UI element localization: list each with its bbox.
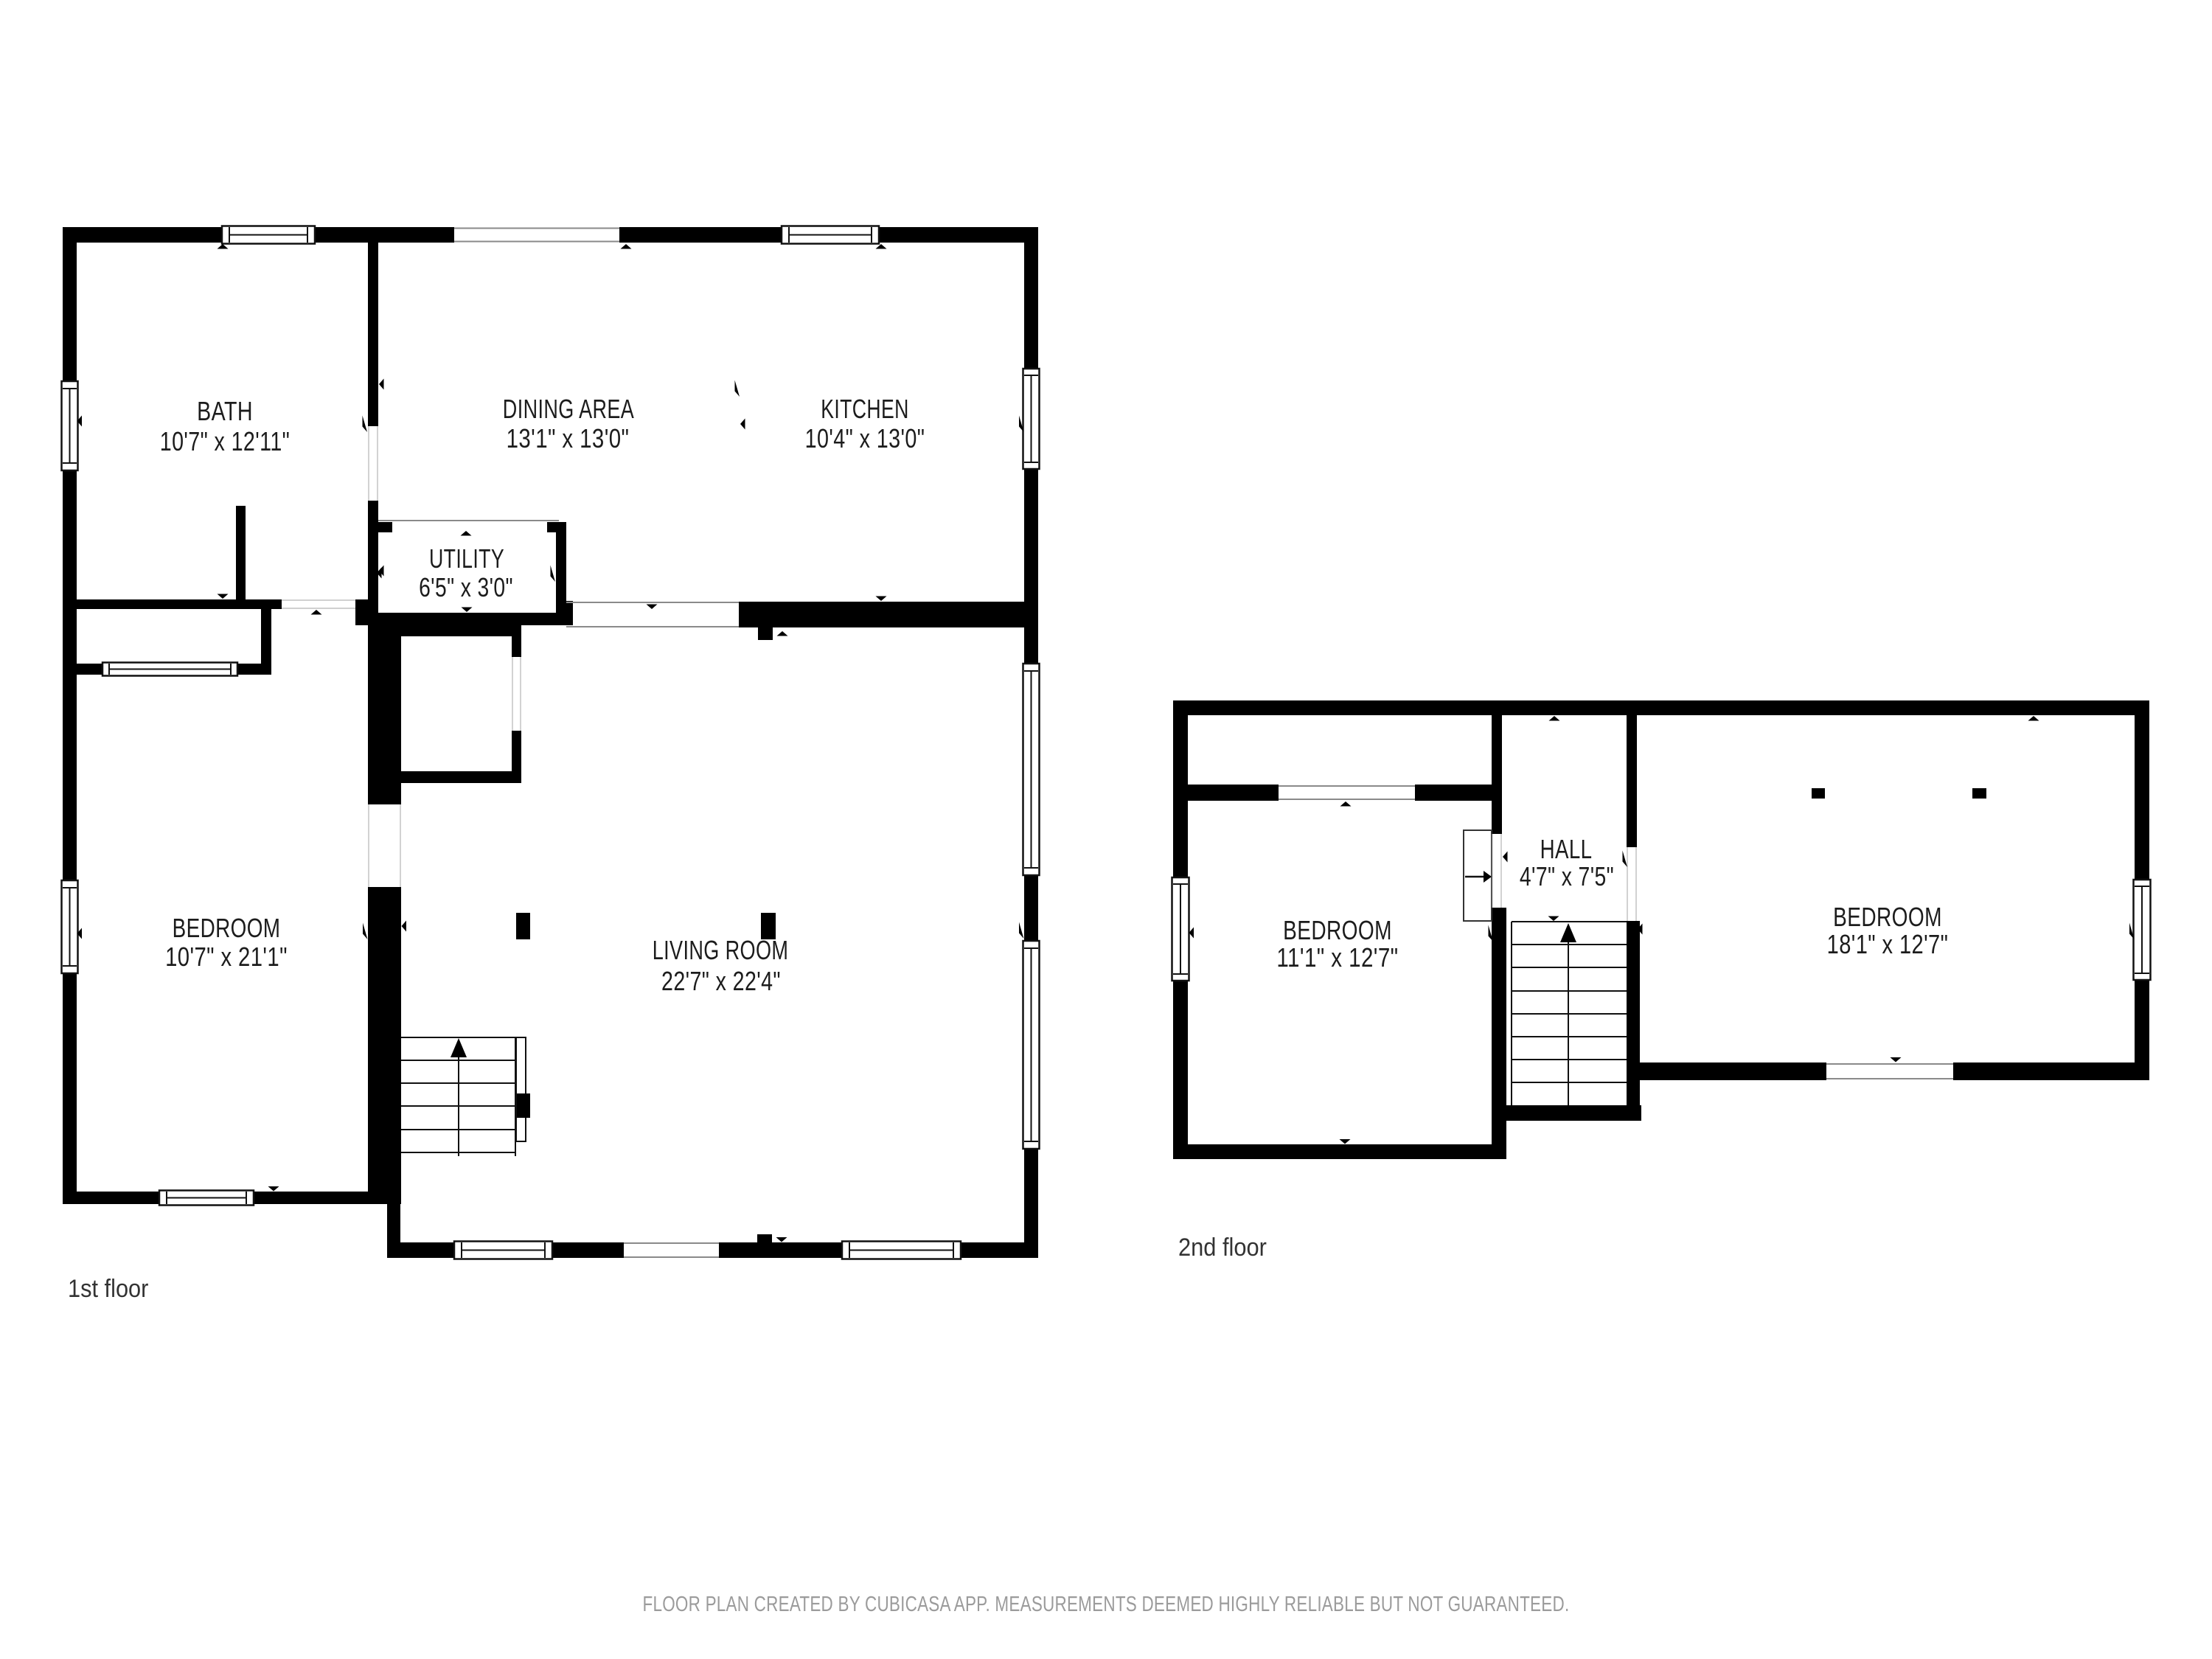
svg-text:FLOOR PLAN CREATED BY CUBICASA: FLOOR PLAN CREATED BY CUBICASA APP. MEAS…	[643, 1593, 1570, 1615]
svg-text:10'4" x 13'0": 10'4" x 13'0"	[805, 424, 925, 453]
svg-text:BEDROOM: BEDROOM	[1833, 902, 1942, 932]
svg-text:13'1" x 13'0": 13'1" x 13'0"	[507, 423, 630, 453]
svg-text:BEDROOM: BEDROOM	[173, 914, 281, 943]
svg-text:10'7" x 21'1": 10'7" x 21'1"	[165, 942, 288, 972]
svg-text:10'7" x 12'11": 10'7" x 12'11"	[160, 427, 290, 456]
svg-text:HALL: HALL	[1540, 835, 1593, 864]
svg-text:18'1" x 12'7": 18'1" x 12'7"	[1827, 929, 1949, 959]
svg-text:DINING AREA: DINING AREA	[503, 394, 635, 424]
svg-text:6'5" x 3'0": 6'5" x 3'0"	[419, 573, 513, 602]
svg-text:UTILITY: UTILITY	[429, 543, 504, 574]
svg-text:2nd floor: 2nd floor	[1178, 1234, 1267, 1262]
svg-text:BATH: BATH	[197, 397, 253, 426]
svg-text:4'7" x 7'5": 4'7" x 7'5"	[1520, 862, 1614, 891]
svg-text:1st floor: 1st floor	[68, 1275, 149, 1303]
svg-text:11'1" x 12'7": 11'1" x 12'7"	[1276, 942, 1398, 972]
svg-text:BEDROOM: BEDROOM	[1283, 916, 1392, 945]
svg-text:KITCHEN: KITCHEN	[821, 394, 908, 424]
svg-text:22'7" x 22'4": 22'7" x 22'4"	[661, 967, 781, 996]
svg-text:LIVING ROOM: LIVING ROOM	[653, 935, 789, 965]
